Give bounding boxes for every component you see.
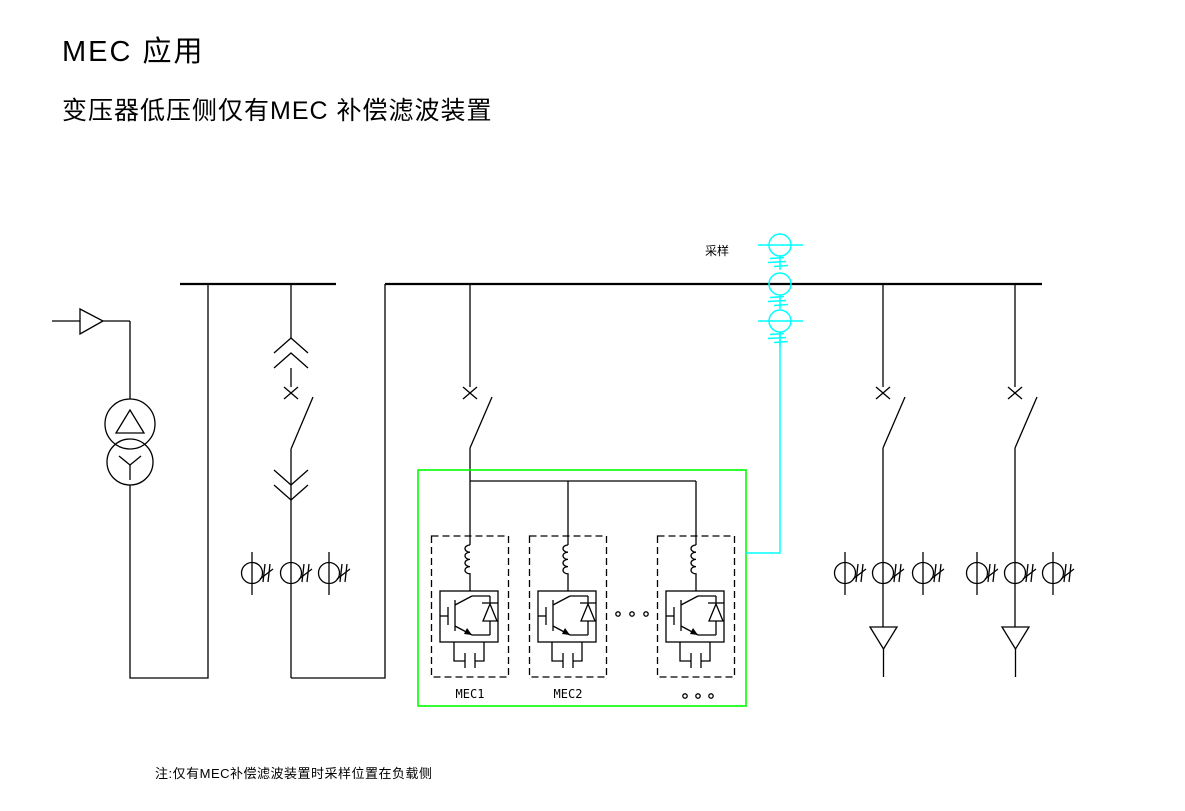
outgoing-feeder-1 [835,284,945,677]
breaker-x-icon [284,387,298,399]
disconnect-blade [883,397,905,448]
mec1-label: MEC1 [445,688,495,700]
disconnect-blade [470,397,492,448]
ct-icon [967,552,999,595]
ct-icon [873,563,905,584]
drawout-contact-upper-icon [274,338,308,368]
bus-tie-branch [242,284,386,678]
disconnect-blade [291,397,313,449]
mec-enclosure-box [418,470,746,706]
page-title: MEC 应用 [62,38,205,67]
sampling-label: 采样 [705,245,729,257]
transformer-lv-loop-line [130,284,208,678]
ct-icon [1005,563,1037,584]
load-arrow-icon [870,627,897,649]
transformer-delta-icon [116,410,144,433]
breaker-x-icon [876,387,890,399]
mec-module-2 [530,536,607,677]
mec-module-3 [658,536,735,677]
footnote: 注:仅有MEC补偿滤波装置时采样位置在负载侧 [155,767,433,780]
sampling-signal-line [746,332,780,553]
sampling-ct-icon [768,273,791,309]
breaker-x-icon [1008,387,1022,399]
ct-icon [281,563,313,584]
incoming-feeder-line [52,309,130,399]
disconnect-blade [1015,397,1037,448]
transformer-wye-icon [119,456,141,480]
ellipsis-dots-mid [616,612,648,616]
breaker-x-icon [463,387,477,399]
ellipsis-dots-label [683,694,713,698]
ct-icon [835,552,867,595]
load-arrow-icon [1002,627,1029,649]
mec-module-1 [432,536,509,677]
ct-icon [1043,552,1075,595]
transformer-icon [105,399,155,485]
ct-icon [242,552,274,595]
page-subtitle: 变压器低压侧仅有MEC 补偿滤波装置 [62,99,493,124]
mec-branch [463,284,696,545]
ct-icon [913,552,945,595]
incoming-arrow-icon [80,309,103,334]
schematic-canvas: MEC 应用 变压器低压侧仅有MEC 补偿滤波装置 采样 MEC1 MEC2 注… [0,0,1185,811]
mec2-label: MEC2 [543,688,593,700]
ct-icon [319,552,351,595]
sampling-circuit [746,234,803,553]
outgoing-feeder-2 [967,284,1075,677]
sampling-ct-icon [768,234,791,270]
bus-tie-loop-line [291,284,385,678]
